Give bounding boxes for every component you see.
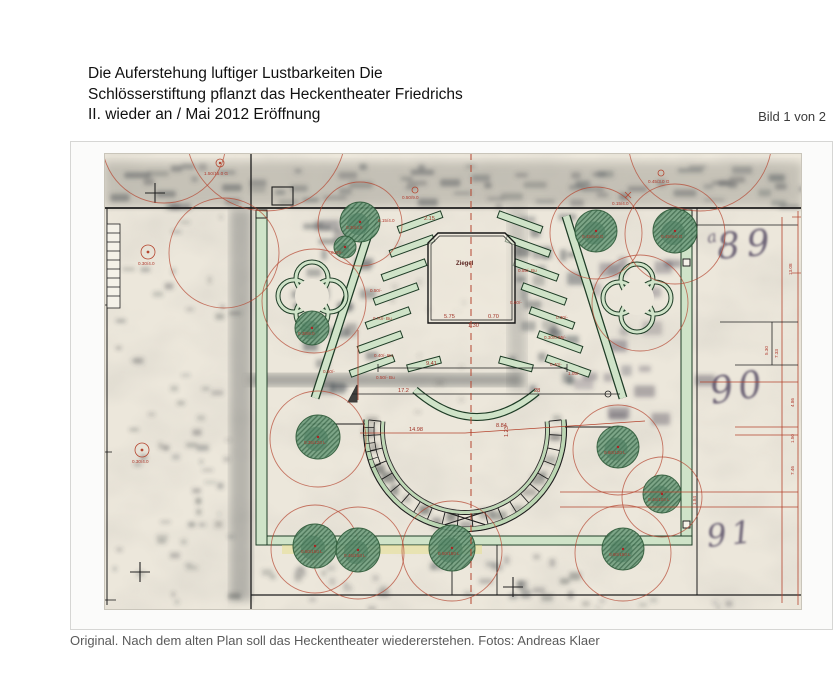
- tree: 0.35/120 L: [296, 415, 340, 459]
- hedge-label: 0.70/- Bu: [373, 316, 392, 321]
- marker-label: 0.30/4.0: [132, 459, 149, 464]
- tree: 0.50/150 L: [429, 525, 475, 571]
- dim-label: 28: [534, 388, 540, 394]
- tree-label: 0.60/150 L: [609, 552, 631, 557]
- hedge-label: 0.15/4.0: [378, 218, 395, 223]
- right-dim-label: 13.08: [788, 263, 793, 275]
- tree-label: 0.30/4.5: [346, 225, 363, 230]
- dim-label: 17.2: [398, 388, 409, 394]
- tree-label: 0.45/8.0 G: [582, 234, 604, 239]
- tree-label: 0.50/150 L: [438, 551, 460, 556]
- hedge-label: 0.30/-: [556, 315, 568, 320]
- marker-label: 0.30/4.0: [138, 261, 155, 266]
- hedge-label: 0.40/- Bu: [374, 353, 393, 358]
- right-dim-label: 7.33: [774, 349, 779, 358]
- right-dim-label: 7.46: [790, 466, 795, 475]
- photo-caption: Original. Nach dem alten Plan soll das H…: [70, 633, 770, 648]
- marker-label: 0.50/9.0: [402, 195, 419, 200]
- page-title: Die Auferstehung luftiger Lustbarkeiten …: [88, 64, 608, 126]
- dim-label: 0.70: [488, 314, 499, 320]
- dim-label: 14.98: [409, 427, 423, 433]
- hedge-label: 0.55/- Bu: [518, 268, 537, 273]
- hedge-label: 0.50/-: [370, 288, 382, 293]
- image-viewer[interactable]: a 89 90 91: [70, 141, 833, 630]
- tree: 0.60/150 L: [602, 528, 644, 570]
- tree-label: 0.45/150 L: [344, 553, 366, 558]
- dim-label: 1.23: [504, 426, 510, 437]
- tree-label: 0.60/120 L: [604, 450, 626, 455]
- tree: 0.45/9.0 G: [653, 209, 697, 253]
- tree: 0.60/120 L: [597, 426, 639, 468]
- tree-label: 0.45/9.0 G: [661, 234, 683, 239]
- gate-marker: [683, 259, 690, 266]
- dim-label: 5.75: [444, 314, 455, 320]
- tree: 0.30/6.0: [295, 311, 329, 345]
- tree-label: 0.35/120 L: [304, 440, 326, 445]
- dim-label: 2.15: [424, 216, 435, 222]
- tree-label: 0.30/6.0: [298, 331, 315, 336]
- tree-label: 0.50/150 L: [301, 549, 323, 554]
- marker-label: 0.45/3.0 G: [648, 179, 670, 184]
- right-dim-label: 5.30: [764, 346, 769, 355]
- right-dim-label: 1.84: [692, 496, 697, 505]
- tree: 0.50/150 L: [293, 524, 337, 568]
- handwriting-90: 90: [707, 361, 770, 412]
- tree: 0.45/150 L: [336, 528, 380, 572]
- hedge-label: 1.05/-: [568, 371, 580, 376]
- marker-label: 0.15/4.0: [612, 201, 629, 206]
- hedge-label: 0.60/-: [510, 300, 522, 305]
- handwriting-91: 91: [705, 514, 758, 555]
- right-dim-label: 4.86: [790, 398, 795, 407]
- tree-label: 0.20/-: [331, 250, 343, 255]
- dim-label: 1.30: [468, 323, 479, 329]
- article-page: Die Auferstehung luftiger Lustbarkeiten …: [0, 0, 838, 673]
- right-dim-label: 1.50: [790, 434, 795, 443]
- ladder-scale: [107, 224, 120, 308]
- marker-label: 1.50/15.0 G: [204, 171, 228, 176]
- hedge-label: 0.50/- Bu: [376, 375, 395, 380]
- hedge-label: 0.50/-: [323, 369, 335, 374]
- plan-image[interactable]: a 89 90 91: [104, 153, 802, 610]
- tree-label: 0.45/100 L: [648, 497, 670, 502]
- left-hedge-wall: [256, 212, 267, 545]
- hedge-label: 0.40/-: [550, 362, 562, 367]
- image-counter: Bild 1 von 2: [703, 109, 826, 124]
- dim-label: 9.41: [426, 361, 437, 367]
- hedge-label: 0.30/0.95/-: [544, 335, 566, 340]
- tree: 0.45/8.0 G: [575, 210, 617, 252]
